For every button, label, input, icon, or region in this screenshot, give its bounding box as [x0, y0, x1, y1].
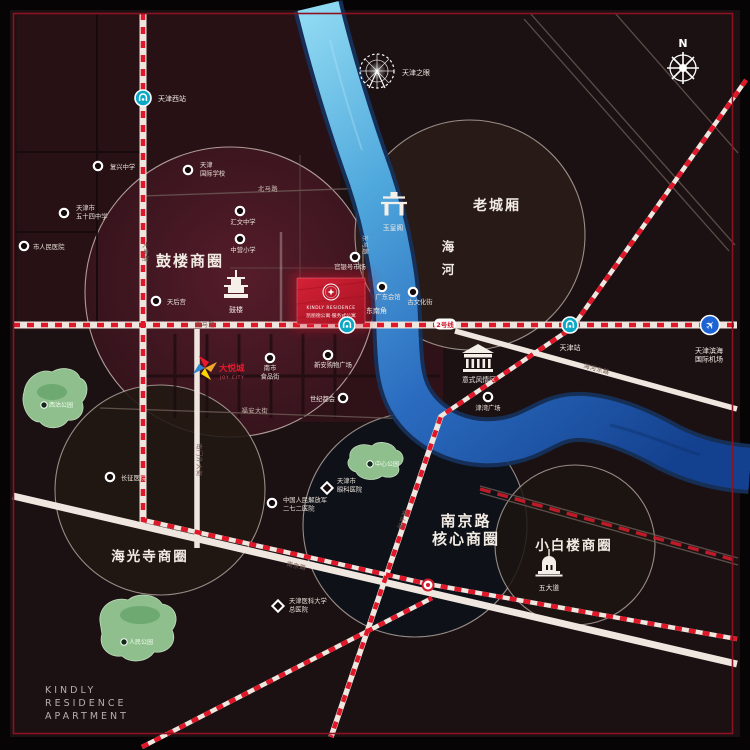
- poi-272-hospital-label: 二七二医院: [283, 504, 315, 513]
- park-zhongxin-marker: 中心公园: [367, 460, 399, 468]
- poi-fuxing-school-label: 复兴中学: [110, 162, 135, 171]
- poi-jinwan-plaza-label: 津湾广场: [475, 403, 500, 412]
- poi-eye-hospital-label: 眼科医院: [337, 485, 363, 494]
- poi-shijiduhui: 世纪都会: [310, 394, 347, 403]
- road-nanmenwai: 南门外大街: [195, 443, 203, 476]
- poi-fuxing-school-icon: [94, 162, 102, 170]
- poi-eye-hospital-label: 天津市: [337, 476, 356, 485]
- district-label-nanjing-2: 核心商圈: [432, 530, 500, 548]
- park-renmin-marker: 人民公园: [121, 639, 153, 646]
- brand-line-3: APARTMENT: [45, 711, 129, 722]
- project-name-en: KINDLY RESIDENCE: [306, 305, 355, 311]
- dongnanjiao-station-icon: [339, 317, 355, 333]
- district-label-haiguangsi: 海光寺商圈: [111, 548, 189, 565]
- road-nanmalu: 南马路: [195, 321, 215, 329]
- project-block: KINDLY RESIDENCE 凯丽德公寓·服务式公寓: [292, 273, 370, 329]
- archway-label: 玉皇阁: [383, 223, 404, 232]
- tianjin-west-station-icon: [135, 90, 151, 106]
- metro-badge-layer: 2号线: [434, 319, 456, 330]
- poi-fuxing-school: 复兴中学: [94, 162, 135, 171]
- poi-guwenhuajie-icon: [409, 288, 417, 296]
- poi-tianhougong-icon: [152, 297, 160, 305]
- poi-nanshi-food-street-label: 食品街: [261, 372, 281, 381]
- poi-272-hospital-label: 中国人民解放军: [283, 495, 327, 504]
- poi-huiwen-school-label: 汇文中学: [230, 217, 255, 226]
- ferris-wheel-icon: [360, 54, 394, 88]
- road-beimalu: 北马路: [258, 185, 278, 193]
- park-xigu-inner: [37, 384, 67, 400]
- compass-north-label: N: [678, 37, 687, 50]
- dome-building-label: 五大道: [539, 583, 560, 592]
- park-xigu-marker: 西沽公园: [41, 401, 73, 409]
- location-map-poster: 天津之眼 鼓楼 玉皇阁 意式风情区 五大道 N: [0, 0, 750, 750]
- poi-tianhougong-label: 天后宫: [167, 297, 186, 306]
- district-label-xiaobailou: 小白楼商圈: [535, 537, 613, 554]
- poi-guangdong-huiguan-label: 广东会馆: [375, 292, 400, 301]
- park-renmin-inner: [120, 606, 160, 624]
- poi-xinan-plaza-icon: [324, 351, 332, 359]
- river-label-char-2: 河: [442, 262, 457, 277]
- binhai-airport-label: 国际机场: [695, 355, 723, 364]
- binhai-airport-label: 天津滨海: [695, 346, 723, 355]
- poi-intl-school-label: 国际学校: [200, 169, 226, 178]
- poi-changzheng-hospital-label: 长征医院: [121, 473, 147, 482]
- park-renmin-label: 人民公园: [129, 639, 153, 646]
- poi-zhongying-school-label: 中营小学: [230, 245, 255, 254]
- joycity-label: 大悦城: [219, 363, 245, 374]
- tianjin-station-label: 天津站: [560, 343, 581, 352]
- poi-medical-univ-hospital-label: 天津医科大学: [289, 596, 327, 605]
- park-xigu-label: 西沽公园: [49, 401, 73, 409]
- road-fuan: 福安大街: [242, 407, 269, 415]
- poi-guanyinhao-icon: [351, 253, 359, 261]
- poi-renmin-hospital-label: 市人民医院: [33, 242, 65, 251]
- park-zhongxin-label: 中心公园: [375, 460, 399, 468]
- poi-guanyinhao-label: 官银号市场: [334, 262, 365, 271]
- poi-guwenhuajie-label: 古文化街: [407, 297, 433, 306]
- poi-xinan-plaza-label: 新安购物广场: [314, 360, 352, 369]
- poi-zhongying-school-icon: [236, 235, 244, 243]
- district-label-nanjing-1: 南京路: [440, 512, 491, 530]
- poi-renmin-hospital: 市人民医院: [20, 242, 65, 251]
- poi-tianhougong: 天后宫: [152, 297, 186, 306]
- brand-line-2: RESIDENCE: [45, 698, 127, 709]
- road-dongmalu: 东马路: [361, 235, 369, 255]
- tianjin-station-icon: [562, 317, 578, 333]
- park-xigu-icon: [41, 402, 47, 408]
- ferris-wheel-label: 天津之眼: [402, 68, 430, 77]
- poi-medical-univ-hospital-label: 总医院: [289, 605, 309, 614]
- columned-building-label: 意式风情区: [462, 375, 496, 384]
- brand-line-1: KINDLY: [45, 685, 96, 696]
- poi-no54-school-label: 五十四中学: [76, 212, 107, 221]
- yingkoudao-station: [423, 580, 434, 591]
- drum-tower-label: 鼓楼: [229, 305, 243, 314]
- park-renmin-shape: [100, 595, 176, 661]
- poi-jinwan-plaza-icon: [484, 393, 492, 401]
- road-dafeng: 大丰路: [141, 242, 149, 262]
- line2-badge-label: 2号线: [436, 320, 454, 329]
- joycity-sub-label: JOY CITY: [219, 375, 245, 380]
- park-zhongxin-icon: [367, 461, 373, 467]
- poi-renmin-hospital-icon: [20, 242, 28, 250]
- poi-changzheng-hospital-icon: [106, 473, 114, 481]
- poi-no54-school-label: 天津市: [76, 203, 95, 212]
- dongnanjiao-station-label: 东南角: [366, 306, 387, 315]
- poi-272-hospital-icon: [268, 499, 276, 507]
- poi-intl-school-icon: [184, 166, 192, 174]
- poi-nanshi-food-street-label: 南市: [264, 363, 277, 372]
- poi-guangdong-huiguan-icon: [378, 283, 386, 291]
- poi-intl-school-label: 天津: [200, 161, 213, 169]
- poi-changzheng-hospital: 长征医院: [106, 473, 147, 482]
- poi-nanshi-food-street-icon: [266, 354, 274, 362]
- map-canvas: 天津之眼 鼓楼 玉皇阁 意式风情区 五大道 N: [0, 0, 750, 750]
- tianjin-west-station-label: 天津西站: [158, 94, 186, 103]
- park-renmin-icon: [121, 639, 127, 645]
- district-label-laochengxiang: 老城厢: [473, 197, 521, 214]
- poi-shijiduhui-icon: [339, 394, 347, 402]
- district-label-gulou: 鼓楼商圈: [156, 252, 224, 270]
- poi-huiwen-school-icon: [236, 207, 244, 215]
- poi-no54-school-icon: [60, 209, 68, 217]
- river-label-char-1: 海: [442, 239, 457, 254]
- poi-shijiduhui-label: 世纪都会: [310, 394, 336, 403]
